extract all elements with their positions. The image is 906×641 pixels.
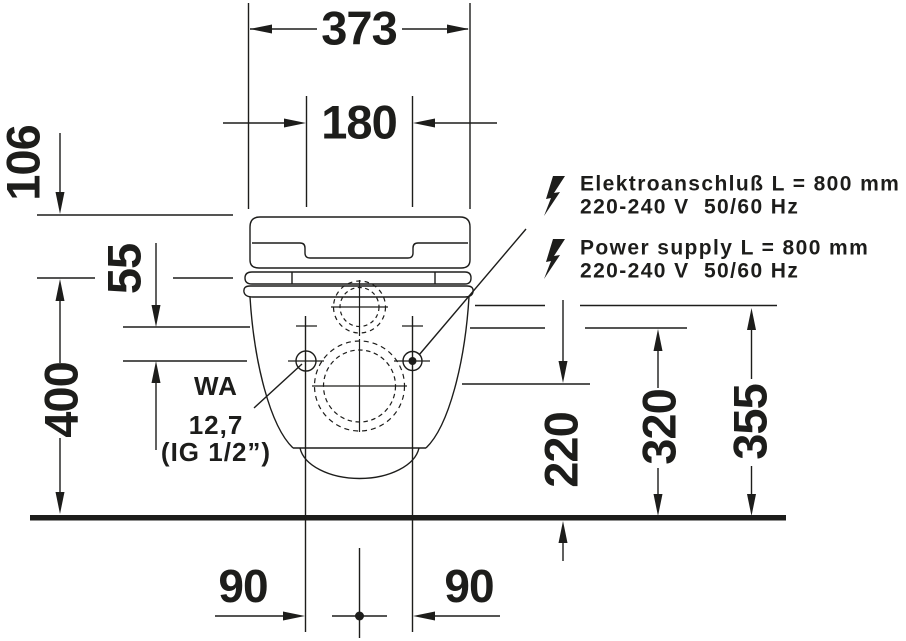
electrical-note-de-line1: Elektroanschluß L = 800 mm (580, 174, 900, 195)
arrowhead (747, 494, 756, 516)
arrowhead (413, 612, 435, 621)
dimension-label-offset-left: 90 (218, 563, 267, 609)
drawing-linework (0, 0, 906, 641)
water-connection-thread: (IG 1/2”) (161, 439, 271, 465)
toilet-seat-ring (244, 272, 473, 297)
arrowhead (747, 308, 756, 330)
dimension-label-fixing-offset: 55 (101, 244, 148, 294)
dimension-line-55 (152, 243, 161, 450)
electrical-note-de-line2: 220-240 V 50/60 Hz (580, 197, 799, 218)
arrowhead (559, 361, 568, 383)
extension-lines-right (462, 306, 777, 385)
arrowhead (654, 494, 663, 516)
toilet-lid (250, 217, 470, 268)
lightning-bolt-icon (544, 239, 565, 279)
arrowhead (654, 329, 663, 351)
dimension-line-90-left (215, 612, 305, 621)
dimension-line-90-right (413, 612, 500, 621)
water-connection-size: 12,7 (189, 412, 244, 438)
water-leader-line (254, 364, 302, 408)
dimension-label-connection-height: 355 (727, 384, 774, 459)
lightning-bolt-icon (544, 176, 565, 216)
dimension-label-overall-width: 373 (321, 5, 396, 52)
lid-notch (252, 243, 468, 258)
technical-drawing-canvas: 373 180 106 55 400 220 320 355 90 90 WA … (0, 0, 906, 641)
electrical-note-en-line1: Power supply L = 800 mm (580, 238, 869, 259)
flush-inlet-circle (331, 280, 388, 336)
dimension-line-106 (56, 133, 65, 301)
arrowhead (447, 25, 469, 34)
trap-outline (300, 448, 419, 478)
floor-line (30, 515, 786, 521)
dimension-label-seat-height: 106 (0, 125, 47, 200)
water-connection-code: WA (194, 373, 238, 399)
arrowhead (56, 492, 65, 514)
arrowhead (56, 192, 65, 214)
electrical-note-en-line2: 220-240 V 50/60 Hz (580, 261, 799, 282)
dimension-label-fixing-width: 180 (321, 99, 396, 146)
arrowhead (56, 279, 65, 301)
arrowhead (250, 25, 272, 34)
drain-outlet-circle (312, 339, 407, 432)
center-point-dot (355, 612, 364, 621)
dimension-label-fixing-height: 320 (636, 389, 683, 464)
arrowhead (283, 612, 305, 621)
electrical-leader-line (419, 229, 526, 355)
dimension-label-outlet-height: 220 (538, 412, 585, 487)
arrowhead (413, 119, 435, 128)
arrowhead (152, 361, 161, 383)
dimension-label-offset-right: 90 (444, 563, 493, 609)
dimension-label-rim-height: 400 (38, 362, 85, 437)
arrowhead (559, 521, 568, 543)
arrowhead (284, 119, 306, 128)
arrowhead (152, 305, 161, 327)
